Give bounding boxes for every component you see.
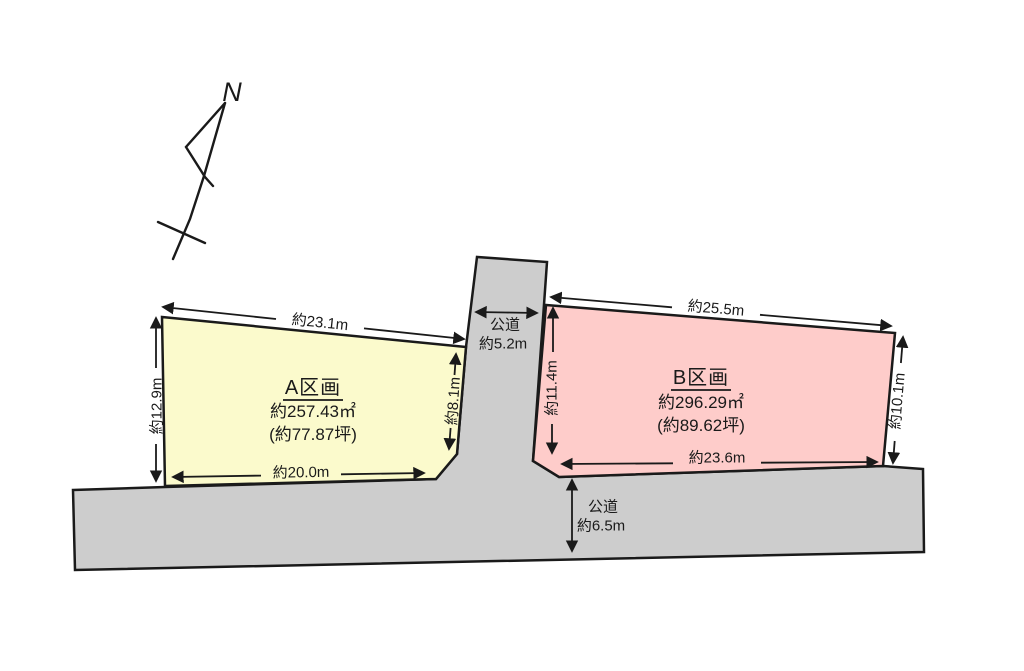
parcel-a-area-tsubo: (約77.87坪) <box>269 425 357 444</box>
dim-a-left-label: 約12.9m <box>148 378 165 435</box>
dim-a-right-label: 約8.1m <box>444 376 464 425</box>
parcel-b-area-m2: 約296.29㎡ <box>658 393 744 412</box>
land-plot-diagram: N A区画 約257.43㎡ (約77.87坪) B区画 約296.29㎡ (約… <box>0 0 1024 671</box>
parcel-a-area-m2: 約257.43㎡ <box>270 402 356 421</box>
road-bottom-name: 公道 <box>588 498 618 515</box>
dim-b-bottom-label: 約23.6m <box>689 449 746 466</box>
dim-a-bottom-label: 約20.0m <box>273 464 330 482</box>
north-arrow: N <box>158 77 242 259</box>
road-vertical-name: 公道 <box>490 316 520 333</box>
parcel-b-area-tsubo: (約89.62坪) <box>657 416 745 435</box>
dim-b-left-label: 約11.4m <box>543 360 560 416</box>
road-vertical-width: 約5.2m <box>479 335 527 352</box>
dim-b-right-label: 約10.1m <box>887 372 909 430</box>
parcel-b-name: B区画 <box>673 367 729 389</box>
north-label: N <box>222 77 242 107</box>
road-bottom-width: 約6.5m <box>577 517 625 534</box>
parcel-a-name: A区画 <box>285 377 341 399</box>
